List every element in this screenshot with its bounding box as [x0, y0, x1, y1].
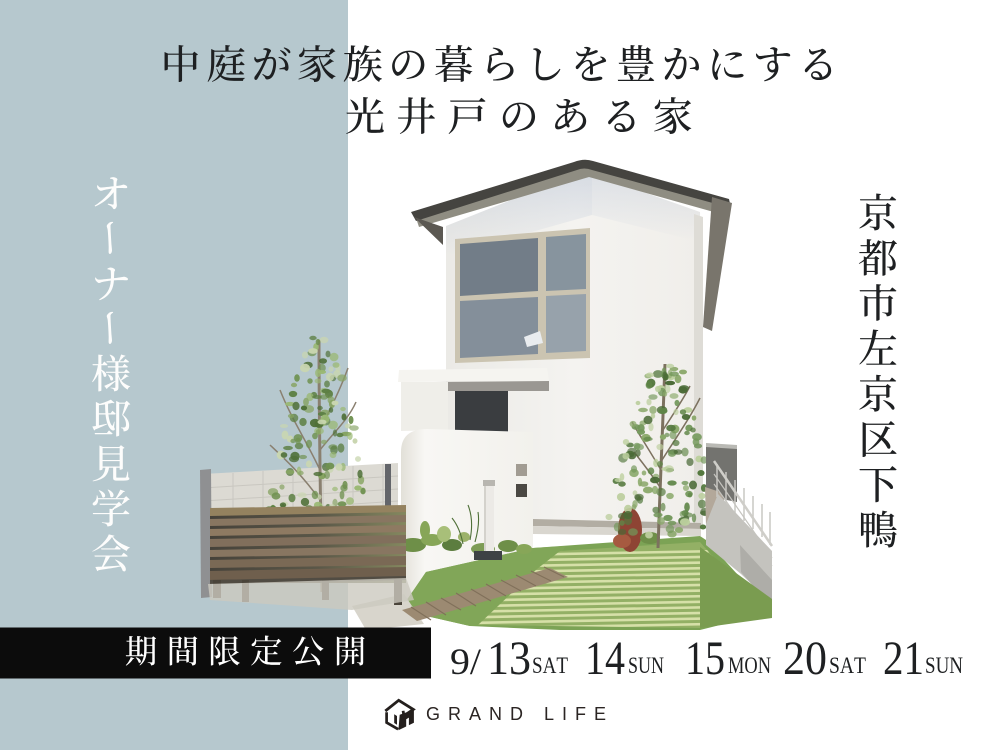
svg-text:SAT: SAT — [829, 653, 866, 678]
svg-text:MON: MON — [728, 653, 771, 678]
svg-text:SAT: SAT — [532, 653, 568, 678]
svg-text:14: 14 — [585, 632, 625, 685]
svg-text:20: 20 — [783, 632, 827, 685]
svg-text:GRAND LIFE: GRAND LIFE — [426, 704, 614, 724]
svg-text:SUN: SUN — [925, 653, 963, 678]
svg-text:13: 13 — [487, 632, 531, 685]
svg-text:SUN: SUN — [628, 653, 664, 678]
svg-text:21: 21 — [883, 632, 924, 685]
svg-text:15: 15 — [685, 632, 725, 685]
svg-text:9/: 9/ — [450, 642, 482, 683]
